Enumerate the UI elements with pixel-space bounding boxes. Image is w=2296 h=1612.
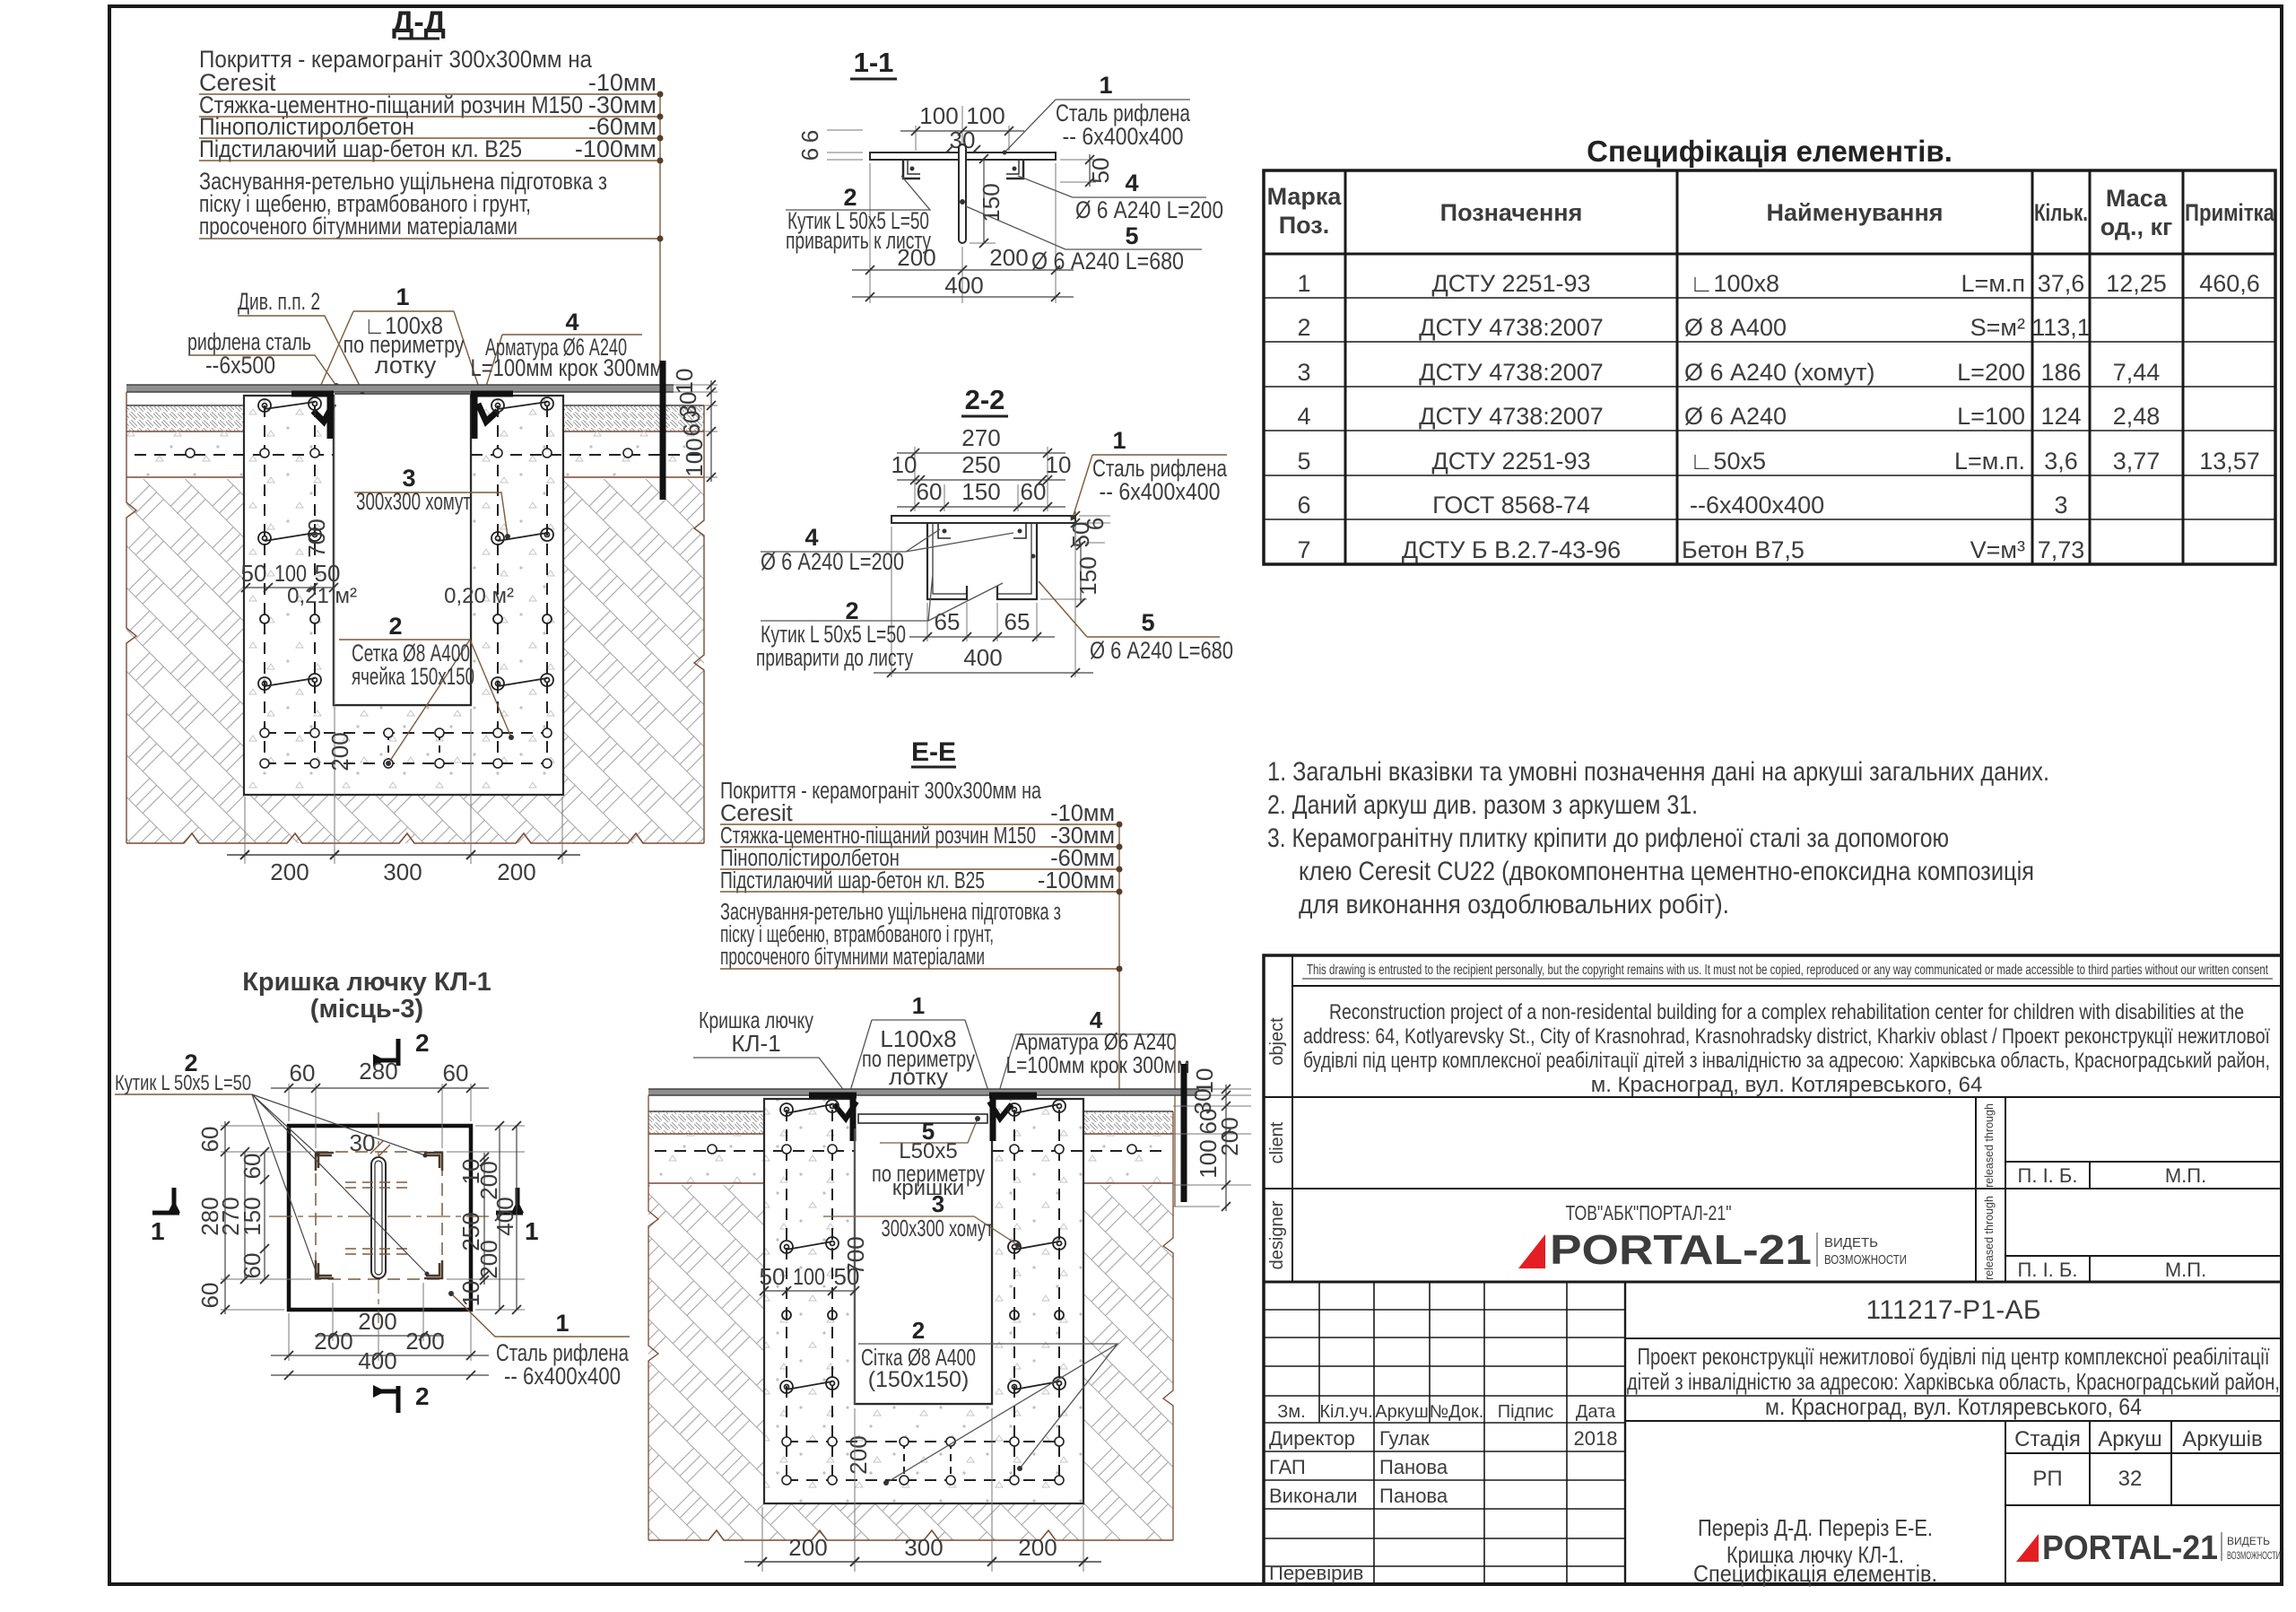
svg-text:10: 10	[891, 451, 918, 478]
svg-text:60: 60	[196, 1127, 223, 1153]
svg-text:ВИДЕТЬ: ВИДЕТЬ	[2227, 1535, 2270, 1547]
svg-text:Дата: Дата	[1576, 1402, 1616, 1422]
svg-text:6: 6	[1297, 492, 1310, 518]
svg-text:3: 3	[932, 1190, 944, 1217]
svg-text:ячейка 150х150: ячейка 150х150	[352, 663, 474, 690]
svg-text:2: 2	[1297, 314, 1310, 341]
svg-text:60: 60	[196, 1283, 223, 1309]
svg-text:released through: released through	[1983, 1103, 1996, 1188]
svg-text:10: 10	[1046, 451, 1072, 478]
svg-text:-30мм: -30мм	[1050, 823, 1115, 849]
svg-text:Д-Д: Д-Д	[392, 5, 446, 39]
svg-text:L=100мм крок 300мм: L=100мм крок 300мм	[471, 354, 664, 381]
svg-text:будівлі під центр комплексної: будівлі під центр комплексної реабілітац…	[1303, 1049, 2270, 1073]
svg-text:4: 4	[565, 309, 578, 335]
svg-text:50: 50	[241, 560, 267, 587]
svg-text:L=100мм крок 300мм: L=100мм крок 300мм	[1006, 1051, 1190, 1078]
svg-text:№Док.: №Док.	[1430, 1402, 1484, 1422]
svg-text:ГАП: ГАП	[1269, 1456, 1306, 1478]
svg-text:-10мм: -10мм	[1050, 801, 1115, 826]
svg-text:5: 5	[1125, 222, 1138, 249]
svg-text:(150х150): (150х150)	[868, 1367, 970, 1392]
svg-text:6: 6	[796, 130, 823, 143]
svg-text:-- 6х400х400: -- 6х400х400	[1100, 478, 1221, 505]
svg-text:37,6: 37,6	[2038, 270, 2085, 297]
svg-text:Позначення: Позначення	[1440, 199, 1583, 226]
svg-text:лотку: лотку	[375, 352, 437, 379]
svg-text:300: 300	[904, 1534, 943, 1561]
svg-text:ГОСТ 8568-74: ГОСТ 8568-74	[1432, 492, 1590, 518]
svg-text:Примітка: Примітка	[2185, 199, 2275, 226]
svg-text:111217-Р1-АБ: 111217-Р1-АБ	[1866, 1295, 2041, 1325]
svg-text:Reconstruction project of a no: Reconstruction project of a non-resident…	[1329, 1000, 2244, 1024]
svg-text:60: 60	[1021, 478, 1047, 505]
svg-text:60: 60	[917, 478, 943, 505]
svg-text:200: 200	[497, 858, 535, 885]
svg-text:L=м.п: L=м.п	[1961, 270, 2025, 297]
svg-text:--6х400х400: --6х400х400	[1690, 492, 1824, 518]
svg-text:Ø 6 А240 L=680: Ø 6 А240 L=680	[1031, 248, 1184, 274]
svg-text:4: 4	[804, 524, 818, 551]
svg-text:Е-Е: Е-Е	[911, 737, 956, 767]
svg-text:50: 50	[834, 1263, 860, 1290]
svg-text:ДСТУ 2251-93: ДСТУ 2251-93	[1431, 448, 1590, 475]
svg-text:124: 124	[2040, 403, 2081, 430]
svg-text:ДСТУ 2251-93: ДСТУ 2251-93	[1431, 270, 1590, 297]
svg-text:клею Ceresit CU22 (двокомпонен: клею Ceresit CU22 (двокомпонентна цемент…	[1299, 857, 2034, 886]
svg-text:address: 64, Kotlyarevsky St.,: address: 64, Kotlyarevsky St., City of K…	[1303, 1024, 2270, 1049]
svg-text:60: 60	[678, 411, 705, 437]
svg-text:10: 10	[671, 369, 698, 395]
svg-text:1: 1	[151, 1217, 165, 1245]
svg-text:PORTAL-21: PORTAL-21	[2042, 1529, 2218, 1567]
svg-text:Аркуш: Аркуш	[1375, 1402, 1428, 1422]
svg-text:300: 300	[383, 858, 422, 885]
svg-text:Директор: Директор	[1269, 1427, 1355, 1450]
svg-text:200: 200	[326, 732, 353, 771]
svg-text:ВОЗМОЖНОСТИ: ВОЗМОЖНОСТИ	[2227, 1549, 2281, 1562]
svg-text:150: 150	[978, 183, 1004, 222]
svg-text:(місць-3): (місць-3)	[310, 995, 423, 1024]
svg-text:Ø 6 А240: Ø 6 А240	[1684, 403, 1787, 430]
svg-text:Ø 8 А400: Ø 8 А400	[1684, 314, 1787, 341]
svg-text:1-1: 1-1	[854, 47, 894, 78]
svg-text:Аркушів: Аркушів	[2182, 1427, 2262, 1451]
svg-text:7,73: 7,73	[2038, 536, 2085, 563]
svg-text:П. І. Б.: П. І. Б.	[2018, 1259, 2078, 1281]
svg-text:Маса: Маса	[2106, 185, 2168, 212]
svg-text:Ø 6 А240 L=680: Ø 6 А240 L=680	[1090, 637, 1233, 664]
svg-text:2. Даний аркуш див. разом з ар: 2. Даний аркуш див. разом з аркушем 31.	[1267, 790, 1698, 820]
svg-text:приварити до листу: приварити до листу	[756, 644, 913, 671]
svg-text:113,1: 113,1	[2031, 314, 2091, 341]
svg-text:300х300 хомут: 300х300 хомут	[356, 488, 471, 515]
svg-text:2: 2	[415, 1382, 430, 1410]
svg-text:32: 32	[2118, 1467, 2143, 1491]
svg-text:100: 100	[966, 102, 1004, 129]
svg-text:од., кг: од., кг	[2100, 213, 2173, 240]
svg-text:200: 200	[270, 858, 309, 885]
svg-text:100: 100	[793, 1263, 825, 1290]
svg-text:2: 2	[415, 1029, 430, 1057]
svg-text:1: 1	[912, 992, 925, 1019]
svg-text:3: 3	[1297, 359, 1310, 386]
svg-text:5: 5	[1297, 448, 1310, 475]
svg-text:Аркуш: Аркуш	[2098, 1427, 2161, 1451]
svg-text:2,48: 2,48	[2113, 403, 2161, 430]
svg-text:5: 5	[1141, 609, 1154, 636]
svg-text:client: client	[1267, 1121, 1287, 1163]
svg-text:150: 150	[961, 478, 1000, 505]
svg-text:7: 7	[1297, 536, 1310, 563]
svg-text:ДСТУ Б В.2.7-43-96: ДСТУ Б В.2.7-43-96	[1402, 536, 1621, 563]
svg-text:400: 400	[963, 644, 1002, 671]
svg-text:object: object	[1267, 1017, 1287, 1066]
svg-text:П. І. Б.: П. І. Б.	[2018, 1164, 2078, 1187]
svg-text:400: 400	[358, 1347, 396, 1374]
svg-text:ДСТУ 4738:2007: ДСТУ 4738:2007	[1419, 359, 1604, 386]
svg-text:1: 1	[555, 1310, 569, 1337]
svg-text:200: 200	[475, 1161, 502, 1199]
svg-text:100: 100	[274, 560, 307, 587]
svg-text:50: 50	[1087, 158, 1114, 184]
svg-text:-- 6х400х400: -- 6х400х400	[1063, 123, 1184, 150]
svg-text:м. Красноград, вул. Котляревсь: м. Красноград, вул. Котляревського, 64	[1591, 1073, 1983, 1097]
svg-text:Ø 6 А240 L=200: Ø 6 А240 L=200	[761, 548, 904, 575]
svg-text:приварить к листу: приварить к листу	[786, 227, 931, 254]
svg-text:400: 400	[491, 1197, 518, 1235]
svg-text:М.П.: М.П.	[2165, 1259, 2206, 1281]
svg-text:200: 200	[405, 1328, 444, 1355]
svg-text:2018: 2018	[1574, 1427, 1618, 1450]
svg-text:-100мм: -100мм	[575, 135, 657, 162]
svg-text:PORTAL-21: PORTAL-21	[1550, 1226, 1812, 1273]
svg-text:2: 2	[388, 613, 402, 640]
svg-text:кришки: кришки	[892, 1176, 964, 1200]
svg-text:ВОЗМОЖНОСТИ: ВОЗМОЖНОСТИ	[1824, 1252, 1907, 1268]
svg-text:3. Керамогранітну плитку кріпи: 3. Керамогранітну плитку кріпити до рифл…	[1267, 823, 1949, 853]
svg-text:Зм.: Зм.	[1277, 1402, 1305, 1422]
svg-text:Пінополістиролбетон: Пінополістиролбетон	[720, 846, 900, 871]
svg-text:200: 200	[845, 1435, 872, 1474]
svg-text:Покриття - керамограніт 300х30: Покриття - керамограніт 300х300мм на	[720, 779, 1042, 804]
svg-text:Заснування-ретельно ущільнена: Заснування-ретельно ущільнена підготовка…	[720, 900, 1061, 925]
svg-text:100: 100	[681, 438, 708, 476]
svg-text:200: 200	[358, 1308, 396, 1335]
svg-text:РП: РП	[2032, 1467, 2062, 1491]
svg-text:4: 4	[1297, 403, 1310, 430]
svg-text:186: 186	[2040, 359, 2081, 386]
svg-text:L=100: L=100	[1957, 403, 2025, 430]
svg-text:Переріз Д-Д. Переріз Е-Е.: Переріз Д-Д. Переріз Е-Е.	[1698, 1514, 1933, 1541]
svg-text:1: 1	[525, 1217, 539, 1245]
svg-text:400: 400	[944, 272, 983, 299]
svg-text:дітей з інвалідністю за адресо: дітей з інвалідністю за адресою: Харківс…	[1627, 1368, 2280, 1395]
svg-text:для виконання оздоблювальних р: для виконання оздоблювальних робіт).	[1299, 890, 1729, 919]
svg-text:Гулак: Гулак	[1379, 1427, 1430, 1450]
svg-text:Стадія: Стадія	[2014, 1427, 2081, 1451]
svg-text:Виконали: Виконали	[1269, 1485, 1358, 1507]
svg-text:м. Красноград, вул. Котляревсь: м. Красноград, вул. Котляревського, 64	[1765, 1393, 2142, 1420]
svg-text:200: 200	[989, 244, 1028, 271]
svg-text:3,77: 3,77	[2113, 448, 2161, 475]
svg-text:200: 200	[1018, 1534, 1057, 1561]
svg-text:Ceresit: Ceresit	[720, 801, 793, 826]
svg-text:Підстилаючий шар-бетон кл. В25: Підстилаючий шар-бетон кл. В25	[199, 135, 522, 162]
svg-text:Специфікація елементів.: Специфікація елементів.	[1693, 1560, 1937, 1587]
svg-text:L=200: L=200	[1957, 359, 2025, 386]
svg-text:700: 700	[303, 518, 330, 557]
svg-text:100: 100	[919, 102, 958, 129]
svg-text:6: 6	[796, 148, 823, 161]
svg-text:3,6: 3,6	[2044, 448, 2078, 475]
svg-text:3: 3	[2054, 492, 2067, 518]
svg-text:Підпис: Підпис	[1498, 1402, 1554, 1422]
svg-text:65: 65	[935, 608, 961, 635]
svg-text:Кутик L 50х5 L=50: Кутик L 50х5 L=50	[115, 1071, 251, 1095]
svg-text:270: 270	[961, 424, 1000, 451]
svg-text:250: 250	[961, 451, 1000, 478]
svg-text:Проект реконструкції нежитлово: Проект реконструкції нежитлової будівлі …	[1638, 1343, 2270, 1370]
svg-text:Панова: Панова	[1379, 1485, 1448, 1507]
svg-text:1: 1	[1112, 427, 1126, 454]
svg-text:Підстилаючий шар-бетон кл. В25: Підстилаючий шар-бетон кл. В25	[720, 868, 985, 893]
svg-text:-100мм: -100мм	[1038, 868, 1115, 893]
svg-text:КЛ-1: КЛ-1	[731, 1030, 780, 1057]
svg-text:Найменування: Найменування	[1766, 199, 1943, 226]
svg-text:∟100х8: ∟100х8	[1690, 270, 1779, 297]
svg-text:2-2: 2-2	[965, 384, 1005, 415]
svg-text:200: 200	[314, 1328, 352, 1355]
svg-text:This drawing is entrusted to t: This drawing is entrusted to the recipie…	[1307, 963, 2268, 978]
svg-text:200: 200	[475, 1240, 502, 1278]
svg-text:12,25: 12,25	[2106, 270, 2167, 297]
svg-text:0,20 м²: 0,20 м²	[444, 584, 514, 608]
svg-text:просоченого бітумними матеріал: просоченого бітумними матеріалами	[720, 945, 985, 970]
svg-text:6: 6	[1082, 518, 1109, 530]
svg-text:Ø 6 А240 L=200: Ø 6 А240 L=200	[1075, 196, 1223, 223]
svg-text:1: 1	[1297, 270, 1310, 297]
svg-text:Кільк.: Кільк.	[2034, 199, 2088, 226]
svg-text:60: 60	[290, 1059, 316, 1086]
svg-text:150: 150	[1074, 556, 1101, 595]
svg-text:0,21 м²: 0,21 м²	[287, 584, 357, 608]
svg-text:Поз.: Поз.	[1279, 212, 1329, 239]
svg-text:М.П.: М.П.	[2165, 1164, 2206, 1187]
svg-text:60: 60	[443, 1059, 469, 1086]
svg-text:Кришка лючку КЛ-1: Кришка лючку КЛ-1	[242, 968, 491, 997]
svg-text:50: 50	[760, 1263, 786, 1290]
svg-text:60: 60	[239, 1253, 265, 1279]
svg-text:4: 4	[1125, 170, 1138, 196]
svg-text:-60мм: -60мм	[1050, 846, 1115, 871]
svg-text:released through: released through	[1983, 1196, 1996, 1280]
svg-text:50: 50	[315, 560, 341, 587]
svg-text:V=м³: V=м³	[1970, 536, 2025, 563]
svg-text:лотку: лотку	[889, 1063, 948, 1090]
svg-text:просоченого бітумними матеріал: просоченого бітумними матеріалами	[199, 213, 517, 240]
svg-text:ВИДЕТЬ: ВИДЕТЬ	[1824, 1235, 1878, 1250]
svg-text:280: 280	[359, 1058, 397, 1085]
svg-text:7,44: 7,44	[2113, 359, 2161, 386]
svg-text:13,57: 13,57	[2199, 448, 2260, 475]
svg-text:Стяжка-цементно-піщаний розчин: Стяжка-цементно-піщаний розчин М150	[720, 823, 1036, 849]
svg-text:піску і щебеню, втрамбованого: піску і щебеню, втрамбованого і грунт,	[720, 922, 994, 947]
svg-text:Марка: Марка	[1267, 183, 1343, 210]
svg-text:65: 65	[1004, 608, 1031, 635]
svg-text:1: 1	[396, 283, 409, 310]
svg-text:-- 6х400х400: -- 6х400х400	[504, 1363, 621, 1390]
svg-text:ДСТУ 4738:2007: ДСТУ 4738:2007	[1419, 314, 1604, 341]
svg-text:10: 10	[457, 1281, 484, 1307]
svg-text:ТОВ"АБК"ПОРТАЛ-21": ТОВ"АБК"ПОРТАЛ-21"	[1566, 1201, 1732, 1224]
svg-text:Див. п.п. 2: Див. п.п. 2	[238, 288, 320, 315]
svg-text:Панова: Панова	[1379, 1456, 1448, 1478]
svg-text:Перевірив: Перевірив	[1269, 1562, 1363, 1584]
svg-text:2: 2	[912, 1317, 925, 1344]
svg-text:Ø 6 А240 (хомут): Ø 6 А240 (хомут)	[1684, 359, 1875, 386]
svg-text:1: 1	[1099, 72, 1112, 99]
svg-text:460,6: 460,6	[2199, 270, 2260, 297]
svg-text:300х300 хомут: 300х300 хомут	[882, 1215, 994, 1242]
svg-text:S=м²: S=м²	[1970, 314, 2025, 341]
svg-text:Кіл.уч.: Кіл.уч.	[1319, 1402, 1372, 1422]
svg-text:200: 200	[1216, 1117, 1243, 1155]
svg-text:Специфікація елементів.: Специфікація елементів.	[1587, 135, 1952, 168]
svg-text:∟50х5: ∟50х5	[1690, 448, 1766, 475]
svg-text:Бетон В7,5: Бетон В7,5	[1682, 536, 1805, 563]
svg-text:ДСТУ 4738:2007: ДСТУ 4738:2007	[1419, 403, 1604, 430]
svg-text:1. Загальні вказівки та умовні: 1. Загальні вказівки та умовні позначенн…	[1267, 757, 2049, 787]
svg-text:60: 60	[239, 1154, 265, 1180]
svg-text:200: 200	[788, 1534, 827, 1561]
svg-text:designer: designer	[1267, 1200, 1287, 1269]
svg-text:150: 150	[239, 1197, 265, 1235]
svg-text:L=м.п.: L=м.п.	[1954, 448, 2025, 475]
